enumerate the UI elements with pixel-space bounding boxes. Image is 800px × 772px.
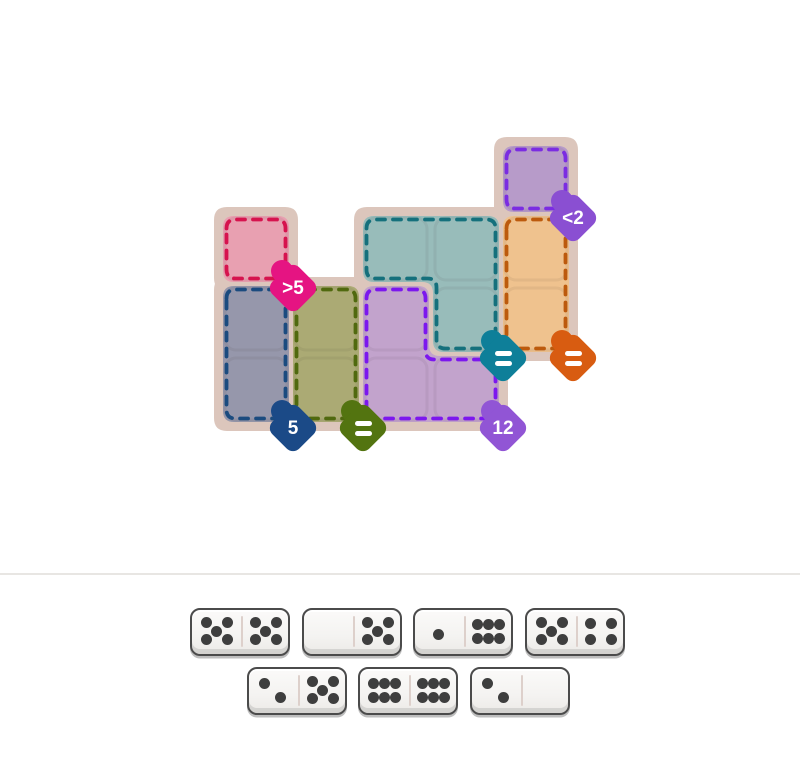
pip xyxy=(250,634,261,645)
domino-half xyxy=(475,672,519,709)
badge-label xyxy=(344,409,382,447)
domino-half xyxy=(524,672,568,709)
pip xyxy=(383,634,394,645)
pip xyxy=(557,617,568,628)
domino-divider xyxy=(521,675,523,706)
pip xyxy=(372,626,383,637)
domino-divider xyxy=(409,675,411,706)
domino-half xyxy=(252,672,296,709)
pip xyxy=(536,634,547,645)
constraint-badge-orange xyxy=(554,339,592,377)
pip xyxy=(585,618,596,629)
board-canvas xyxy=(0,0,800,580)
domino-half xyxy=(195,613,239,650)
badge-label: >5 xyxy=(274,269,312,307)
domino-half xyxy=(467,613,511,650)
pip xyxy=(472,619,483,630)
pip xyxy=(368,692,379,703)
pip xyxy=(472,633,483,644)
pip xyxy=(307,693,318,704)
pip xyxy=(250,617,261,628)
domino-half xyxy=(244,613,288,650)
constraint-badge-teal xyxy=(484,339,522,377)
badge-label xyxy=(554,339,592,377)
domino-puzzle-app: <2>5512 xyxy=(0,0,800,772)
pip xyxy=(211,626,222,637)
pip xyxy=(428,692,439,703)
equals-bar xyxy=(495,351,512,356)
pip xyxy=(328,676,339,687)
badge-label: 12 xyxy=(484,409,522,447)
pip xyxy=(222,617,233,628)
domino-half xyxy=(301,672,345,709)
domino-half xyxy=(418,613,462,650)
constraint-badge-purple-l: 12 xyxy=(484,409,522,447)
pip xyxy=(606,618,617,629)
pip xyxy=(494,633,505,644)
constraint-badge-olive xyxy=(344,409,382,447)
pip xyxy=(483,619,494,630)
domino-half xyxy=(356,613,400,650)
pip xyxy=(271,617,282,628)
pip xyxy=(433,629,444,640)
pip xyxy=(201,634,212,645)
pip xyxy=(390,678,401,689)
puzzle-board: <2>5512 xyxy=(0,0,800,580)
equals-bar xyxy=(355,431,372,436)
pip xyxy=(317,685,328,696)
domino-0-5[interactable] xyxy=(302,608,402,656)
domino-divider xyxy=(241,616,243,647)
pip xyxy=(428,678,439,689)
pip xyxy=(271,634,282,645)
badge-label: 5 xyxy=(274,409,312,447)
pip xyxy=(494,619,505,630)
domino-2-5[interactable] xyxy=(247,667,347,715)
pip xyxy=(222,634,233,645)
pip xyxy=(390,692,401,703)
pip xyxy=(498,692,509,703)
pip xyxy=(379,678,390,689)
pip xyxy=(328,693,339,704)
pip xyxy=(383,617,394,628)
pip xyxy=(259,678,270,689)
badge-label: <2 xyxy=(554,199,592,237)
equals-bar xyxy=(565,361,582,366)
domino-half xyxy=(307,613,351,650)
domino-2-0[interactable] xyxy=(470,667,570,715)
domino-half xyxy=(579,613,623,650)
equals-bar xyxy=(565,351,582,356)
constraint-badge-slate: 5 xyxy=(274,409,312,447)
pip xyxy=(201,617,212,628)
pip xyxy=(417,692,428,703)
domino-divider xyxy=(576,616,578,647)
equals-bar xyxy=(355,421,372,426)
domino-divider xyxy=(298,675,300,706)
constraint-badge-purple-top: <2 xyxy=(554,199,592,237)
domino-5-4[interactable] xyxy=(525,608,625,656)
domino-6-6[interactable] xyxy=(358,667,458,715)
pip xyxy=(439,678,450,689)
domino-half xyxy=(530,613,574,650)
constraint-badge-pink: >5 xyxy=(274,269,312,307)
pip xyxy=(483,633,494,644)
pip xyxy=(585,634,596,645)
pip xyxy=(362,617,373,628)
pip xyxy=(439,692,450,703)
domino-divider xyxy=(464,616,466,647)
domino-half xyxy=(363,672,407,709)
pip xyxy=(606,634,617,645)
tray-divider xyxy=(0,573,800,575)
pip xyxy=(260,626,271,637)
domino-1-6[interactable] xyxy=(413,608,513,656)
pip xyxy=(368,678,379,689)
equals-bar xyxy=(495,361,512,366)
pip xyxy=(362,634,373,645)
pip xyxy=(307,676,318,687)
pip xyxy=(379,692,390,703)
pip xyxy=(275,692,286,703)
domino-half xyxy=(412,672,456,709)
pip xyxy=(417,678,428,689)
domino-divider xyxy=(353,616,355,647)
domino-5-5[interactable] xyxy=(190,608,290,656)
pip xyxy=(557,634,568,645)
pip xyxy=(546,626,557,637)
badge-label xyxy=(484,339,522,377)
pip xyxy=(536,617,547,628)
pip xyxy=(482,678,493,689)
